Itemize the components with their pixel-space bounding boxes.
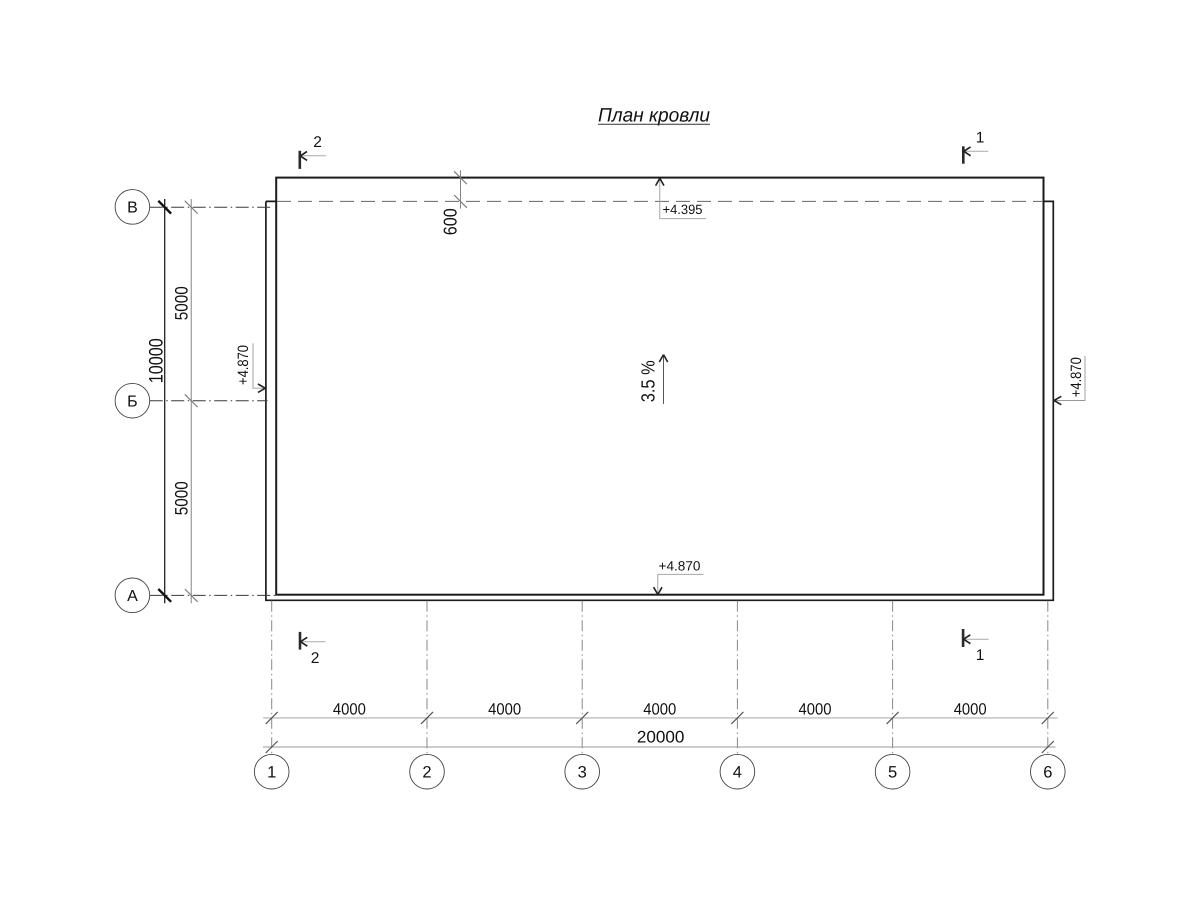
svg-text:4000: 4000 — [333, 701, 366, 719]
svg-text:6: 6 — [1043, 763, 1052, 781]
svg-text:5000: 5000 — [171, 286, 191, 320]
svg-text:10000: 10000 — [146, 338, 168, 383]
svg-text:+4.870: +4.870 — [235, 345, 252, 385]
svg-text:20000: 20000 — [637, 727, 685, 746]
svg-text:План кровли: План кровли — [598, 105, 710, 127]
svg-text:2: 2 — [422, 763, 431, 781]
svg-text:1: 1 — [976, 647, 985, 664]
svg-text:+4.395: +4.395 — [663, 202, 703, 217]
svg-text:4000: 4000 — [799, 701, 832, 719]
svg-text:1: 1 — [976, 130, 985, 147]
svg-text:+4.870: +4.870 — [1068, 357, 1085, 397]
svg-text:4000: 4000 — [488, 701, 521, 719]
svg-text:5: 5 — [888, 763, 897, 781]
svg-text:4000: 4000 — [954, 701, 987, 719]
svg-text:1: 1 — [267, 763, 276, 781]
svg-text:5000: 5000 — [171, 481, 191, 515]
svg-text:В: В — [127, 200, 138, 217]
svg-text:2: 2 — [311, 650, 320, 667]
svg-text:2: 2 — [313, 134, 322, 151]
svg-text:А: А — [127, 588, 138, 605]
svg-text:Б: Б — [127, 393, 138, 410]
svg-text:4000: 4000 — [643, 701, 676, 719]
svg-text:3: 3 — [578, 763, 587, 781]
svg-text:4: 4 — [733, 763, 742, 781]
svg-text:600: 600 — [440, 208, 461, 235]
svg-text:3.5 %: 3.5 % — [639, 360, 660, 402]
svg-text:+4.870: +4.870 — [659, 559, 701, 574]
